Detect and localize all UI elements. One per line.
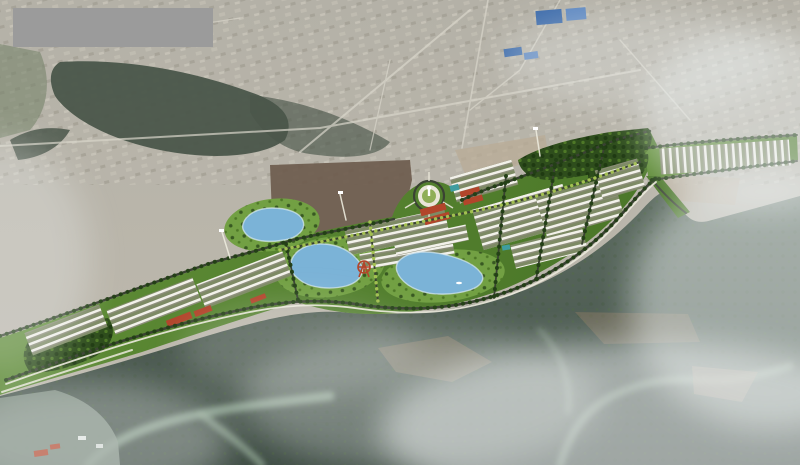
masterplan-aerial-image (0, 0, 800, 465)
gate-building (338, 191, 343, 194)
masterplan-render-canvas (0, 0, 800, 465)
haze-patch (500, 10, 780, 110)
censored-watermark-block (13, 8, 213, 47)
upper-lake (243, 208, 304, 241)
gate-building (219, 229, 224, 232)
boat (456, 282, 462, 285)
gate-building (533, 127, 538, 130)
haze-patch (180, 300, 420, 400)
monument-top (427, 186, 431, 190)
